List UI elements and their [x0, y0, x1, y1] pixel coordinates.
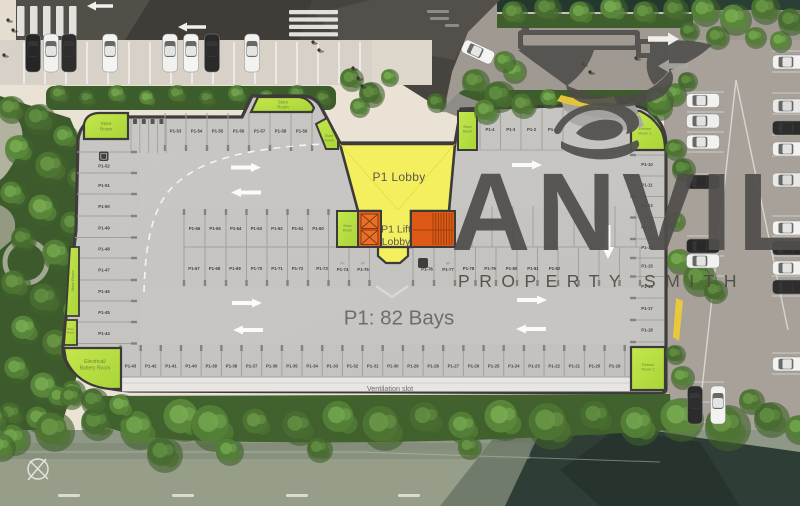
svg-text:P1-64: P1-64 [230, 226, 242, 231]
svg-text:P1-40: P1-40 [185, 364, 197, 369]
svg-text:P1-24: P1-24 [508, 364, 520, 369]
svg-text:P1-50: P1-50 [98, 204, 110, 209]
svg-text:P1-22: P1-22 [548, 364, 560, 369]
svg-text:P1-74: P1-74 [337, 267, 349, 272]
svg-text:P1-44: P1-44 [98, 331, 110, 336]
svg-text:P1-76: P1-76 [421, 267, 433, 272]
svg-text:P1-57: P1-57 [254, 129, 266, 134]
svg-text:P1-61: P1-61 [292, 226, 304, 231]
svg-text:P1-73: P1-73 [316, 266, 328, 271]
svg-text:P1-27: P1-27 [448, 364, 460, 369]
svg-text:Room: Room [324, 139, 334, 143]
svg-text:P1-60: P1-60 [312, 226, 324, 231]
svg-text:P1-35: P1-35 [286, 364, 298, 369]
svg-text:Store: Store [343, 224, 352, 228]
svg-text:P1-28: P1-28 [427, 364, 439, 369]
svg-text:P1-43: P1-43 [125, 364, 137, 369]
svg-text:P1-41: P1-41 [165, 364, 177, 369]
svg-text:P1-36: P1-36 [266, 364, 278, 369]
svg-text:P1-2: P1-2 [527, 127, 537, 132]
svg-text:Room: Room [100, 127, 112, 132]
svg-text:P1-25: P1-25 [488, 364, 500, 369]
svg-text:P1-67: P1-67 [188, 266, 200, 271]
svg-text:P1-72: P1-72 [292, 266, 304, 271]
svg-text:P1-37: P1-37 [246, 364, 258, 369]
svg-text:PROPERTY SMITH: PROPERTY SMITH [458, 271, 746, 291]
svg-text:P1-31: P1-31 [367, 364, 379, 369]
svg-text:P1 Lift: P1 Lift [381, 224, 411, 236]
svg-text:P1-69: P1-69 [229, 266, 241, 271]
svg-text:Room 1: Room 1 [638, 132, 651, 136]
svg-text:P1-55: P1-55 [212, 129, 224, 134]
svg-text:P1-18: P1-18 [641, 328, 653, 333]
svg-text:P1-46: P1-46 [98, 289, 110, 294]
svg-text:P1-17: P1-17 [641, 306, 653, 311]
svg-text:P1-4: P1-4 [485, 127, 495, 132]
svg-text:P1-65: P1-65 [209, 226, 221, 231]
svg-text:ANVIL: ANVIL [451, 151, 800, 274]
svg-text:Room 2: Room 2 [641, 368, 654, 372]
svg-text:Room: Room [343, 229, 353, 233]
svg-text:P1-32: P1-32 [347, 364, 359, 369]
svg-text:Room: Room [277, 105, 289, 110]
svg-text:P1-23: P1-23 [528, 364, 540, 369]
svg-text:P1-54: P1-54 [191, 129, 203, 134]
svg-text:P1-39: P1-39 [206, 364, 218, 369]
svg-text:P1-70: P1-70 [251, 266, 263, 271]
svg-text:P1-34: P1-34 [306, 364, 318, 369]
svg-text:Ventilation slot: Ventilation slot [367, 384, 413, 393]
svg-text:P1-45: P1-45 [98, 310, 110, 315]
svg-text:Battery Room: Battery Room [80, 366, 111, 372]
svg-text:P1-75: P1-75 [357, 267, 369, 272]
svg-text:P1-21: P1-21 [569, 364, 581, 369]
svg-text:P1-66: P1-66 [189, 226, 201, 231]
svg-text:AF: AF [340, 262, 345, 266]
svg-text:P1-68: P1-68 [209, 266, 221, 271]
svg-text:P1-71: P1-71 [271, 266, 283, 271]
svg-text:Refuse: Refuse [642, 363, 654, 367]
svg-text:P1-52: P1-52 [98, 164, 110, 169]
svg-text:P1 Lobby: P1 Lobby [372, 170, 425, 184]
svg-text:Store: Store [101, 121, 112, 126]
svg-text:Lobby: Lobby [382, 236, 411, 248]
svg-text:Store: Store [325, 134, 334, 138]
svg-text:P1-30: P1-30 [387, 364, 399, 369]
svg-text:AF: AF [361, 262, 366, 266]
svg-text:P1-59: P1-59 [296, 129, 308, 134]
svg-text:P1-26: P1-26 [468, 364, 480, 369]
svg-text:P1-51: P1-51 [98, 183, 110, 188]
svg-text:P1-49: P1-49 [98, 226, 110, 231]
svg-text:Electrical/: Electrical/ [84, 359, 106, 365]
svg-text:Store: Store [463, 125, 472, 129]
svg-text:P1-38: P1-38 [226, 364, 238, 369]
svg-text:P1-3: P1-3 [506, 127, 516, 132]
svg-text:P1-19: P1-19 [609, 364, 621, 369]
svg-text:P1-33: P1-33 [327, 364, 339, 369]
svg-text:P1-47: P1-47 [98, 268, 110, 273]
svg-text:P1-20: P1-20 [589, 364, 601, 369]
svg-text:P1-58: P1-58 [275, 129, 287, 134]
svg-text:Store Room: Store Room [70, 270, 75, 292]
svg-text:P1-56: P1-56 [233, 129, 245, 134]
svg-text:P1-62: P1-62 [271, 226, 283, 231]
svg-text:P1-29: P1-29 [407, 364, 419, 369]
svg-text:Refuse: Refuse [639, 127, 651, 131]
svg-text:P1-42: P1-42 [145, 364, 157, 369]
svg-text:P1-63: P1-63 [251, 226, 263, 231]
svg-text:P1-53: P1-53 [170, 129, 182, 134]
svg-text:Room: Room [463, 130, 473, 134]
svg-text:Room: Room [67, 331, 75, 335]
svg-text:P1: 82 Bays: P1: 82 Bays [344, 307, 455, 330]
svg-text:P1-48: P1-48 [98, 247, 110, 252]
